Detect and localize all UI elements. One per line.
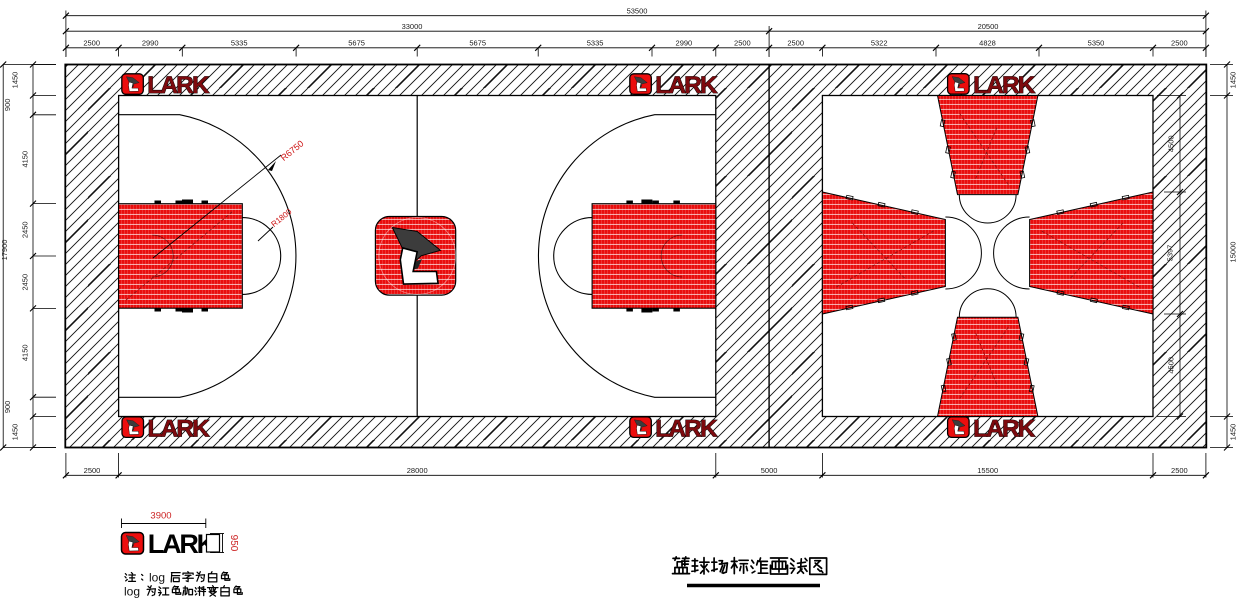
svg-text:5335: 5335 xyxy=(587,39,604,48)
svg-text:28000: 28000 xyxy=(407,466,428,475)
svg-text:1450: 1450 xyxy=(1229,424,1238,441)
svg-text:2500: 2500 xyxy=(83,39,100,48)
svg-text:LARK: LARK xyxy=(655,415,718,442)
svg-text:4150: 4150 xyxy=(21,344,30,361)
svg-text:5675: 5675 xyxy=(469,39,486,48)
svg-text:17900: 17900 xyxy=(0,240,9,261)
svg-text:2500: 2500 xyxy=(1171,39,1188,48)
svg-text:1450: 1450 xyxy=(11,72,20,89)
svg-text:900: 900 xyxy=(3,99,12,112)
svg-text:4828: 4828 xyxy=(979,39,996,48)
svg-text:LARK: LARK xyxy=(655,72,718,99)
svg-text:2500: 2500 xyxy=(84,466,101,475)
svg-text:4150: 4150 xyxy=(21,151,30,168)
svg-text:1450: 1450 xyxy=(1229,72,1238,89)
svg-text:2500: 2500 xyxy=(734,39,751,48)
svg-text:2990: 2990 xyxy=(676,39,693,48)
svg-text:LARK: LARK xyxy=(148,415,211,442)
svg-text:log: log xyxy=(124,585,140,599)
svg-text:LARK: LARK xyxy=(973,72,1036,99)
svg-text:2450: 2450 xyxy=(21,221,30,238)
svg-text:4500: 4500 xyxy=(1167,357,1176,374)
svg-text:LARK: LARK xyxy=(973,415,1036,442)
svg-text:5675: 5675 xyxy=(348,39,365,48)
svg-text:log: log xyxy=(149,571,165,585)
svg-text:15500: 15500 xyxy=(977,466,998,475)
svg-text:900: 900 xyxy=(3,401,12,414)
svg-text:LARK: LARK xyxy=(147,72,210,99)
svg-text:1450: 1450 xyxy=(11,424,20,441)
svg-text:5322: 5322 xyxy=(871,39,888,48)
svg-text:2450: 2450 xyxy=(21,274,30,291)
svg-text:53500: 53500 xyxy=(627,7,648,16)
svg-text:2990: 2990 xyxy=(142,39,159,48)
svg-text:20500: 20500 xyxy=(978,22,999,31)
svg-text:5000: 5000 xyxy=(761,466,778,475)
svg-text:3900: 3900 xyxy=(150,511,171,522)
svg-text:2500: 2500 xyxy=(787,39,804,48)
svg-text:15000: 15000 xyxy=(1229,242,1238,263)
svg-text:5397: 5397 xyxy=(1166,245,1175,262)
svg-text:33000: 33000 xyxy=(402,22,423,31)
svg-text:5350: 5350 xyxy=(1088,39,1105,48)
svg-text:4500: 4500 xyxy=(1167,135,1176,152)
svg-text:950: 950 xyxy=(228,535,239,552)
svg-text:5335: 5335 xyxy=(231,39,248,48)
svg-text:2500: 2500 xyxy=(1171,466,1188,475)
